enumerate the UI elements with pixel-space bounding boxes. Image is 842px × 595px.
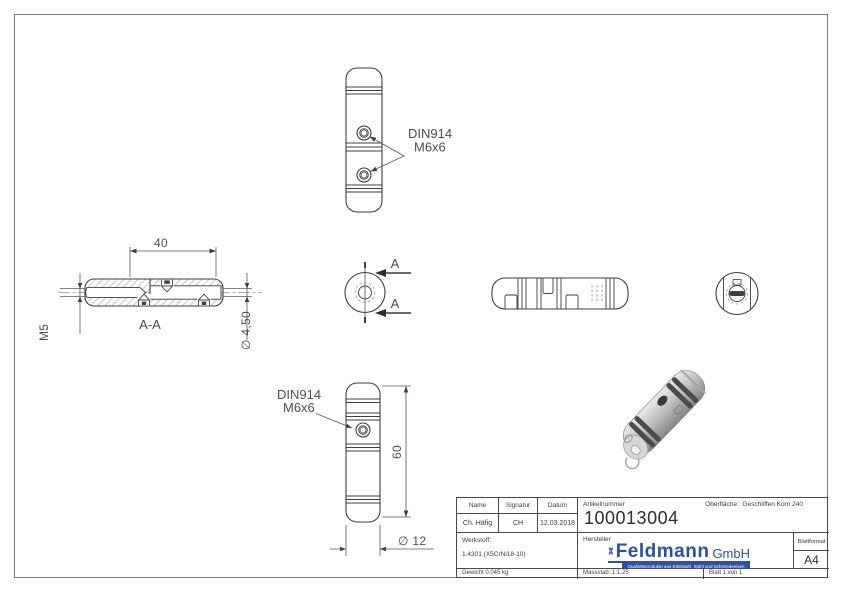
titleblock-header-signatur: Signatur: [499, 498, 538, 514]
titleblock-header-name: Name: [457, 498, 499, 514]
hersteller-cell: Hersteller Feldmann GmbH Qualitätsproduk…: [578, 533, 794, 569]
logo-brand: Feldmann: [616, 543, 710, 560]
werkstoff-label: Werkstoff:: [462, 537, 491, 544]
titleblock-header-datum: Datum: [538, 498, 578, 514]
titleblock-value-datum: 12.03.2018: [538, 514, 578, 533]
oberflaeche-label: Oberfläche:: [705, 501, 739, 508]
blattformat-value: A4: [794, 551, 829, 569]
blatt-von: Blatt 1 von 1: [704, 569, 829, 579]
titleblock-value-name: Ch. Häfig: [457, 514, 499, 533]
werkstoff-value: 1.4301 (X5CrNi18-10): [462, 551, 526, 558]
artikelnummer-value: 100013004: [584, 508, 679, 529]
gewicht: Gewicht 0.045 kg: [457, 569, 578, 579]
werkstoff-cell: Werkstoff: 1.4301 (X5CrNi18-10): [457, 533, 578, 569]
massstab: Massstab: 1:1.25: [578, 569, 704, 579]
oberflaeche-value: Geschliffen Korn 240: [742, 501, 803, 508]
title-block: Name Signatur Datum Ch. Häfig CH 12.03.2…: [456, 497, 828, 578]
artikelnummer-cell: Artikelnummer Oberfläche: Geschliffen Ko…: [578, 498, 829, 533]
blattformat-label: Blattformat: [794, 533, 829, 551]
hersteller-label: Hersteller: [583, 536, 611, 543]
artikelnummer-label: Artikelnummer: [583, 501, 625, 508]
castle-icon: [608, 542, 614, 560]
titleblock-value-signatur: CH: [499, 514, 538, 533]
sheet-border: [14, 14, 828, 578]
drawing-sheet: DIN914 M6x6: [0, 0, 842, 595]
logo-suffix: GmbH: [712, 547, 750, 560]
oberflaeche: Oberfläche: Geschliffen Korn 240: [705, 501, 803, 508]
feldmann-logo: Feldmann GmbH Qualitätsprodukte aus Edel…: [608, 542, 750, 569]
